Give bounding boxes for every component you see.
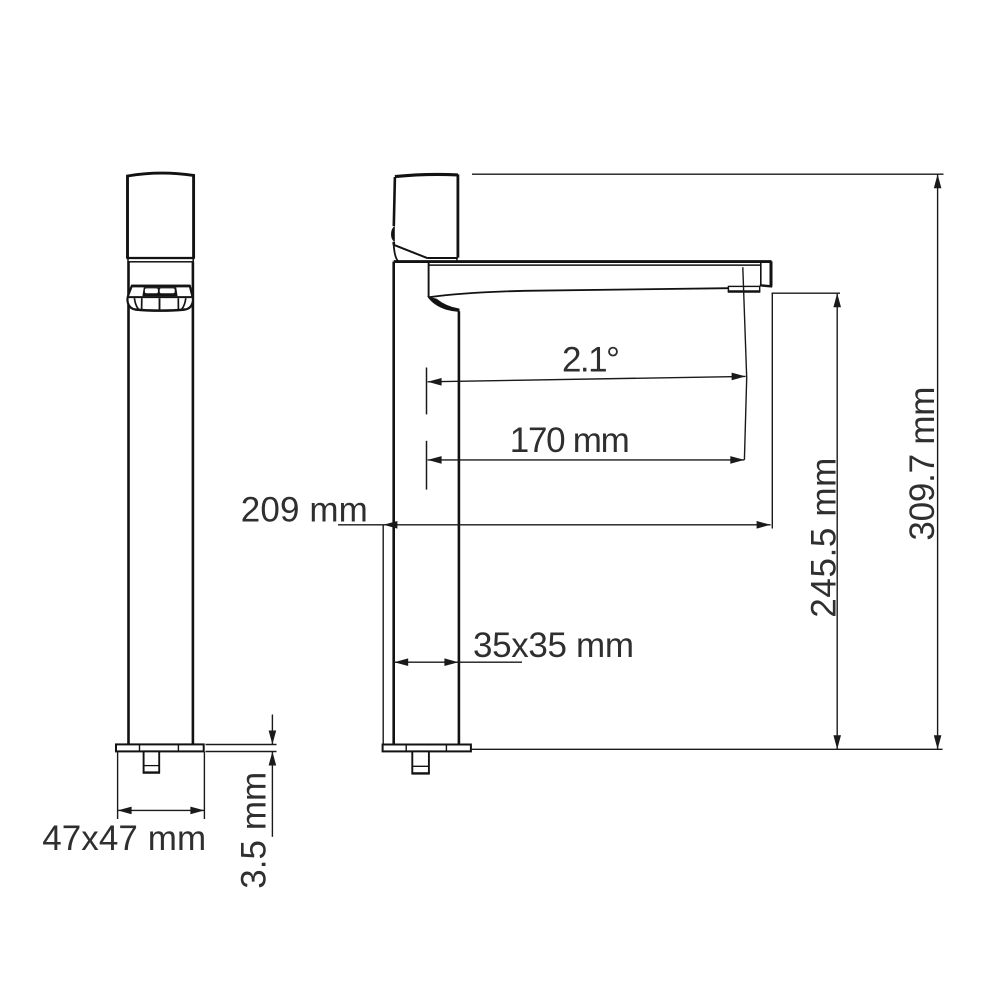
svg-text:245.5 mm: 245.5 mm	[805, 458, 844, 618]
svg-text:170 mm: 170 mm	[510, 421, 630, 460]
svg-text:35x35 mm: 35x35 mm	[473, 626, 634, 665]
svg-text:47x47 mm: 47x47 mm	[42, 819, 206, 858]
svg-text:209 mm: 209 mm	[241, 491, 368, 530]
svg-text:2.1°: 2.1°	[562, 341, 620, 380]
svg-text:309.7 mm: 309.7 mm	[903, 387, 942, 541]
svg-text:3.5 mm: 3.5 mm	[235, 772, 274, 889]
